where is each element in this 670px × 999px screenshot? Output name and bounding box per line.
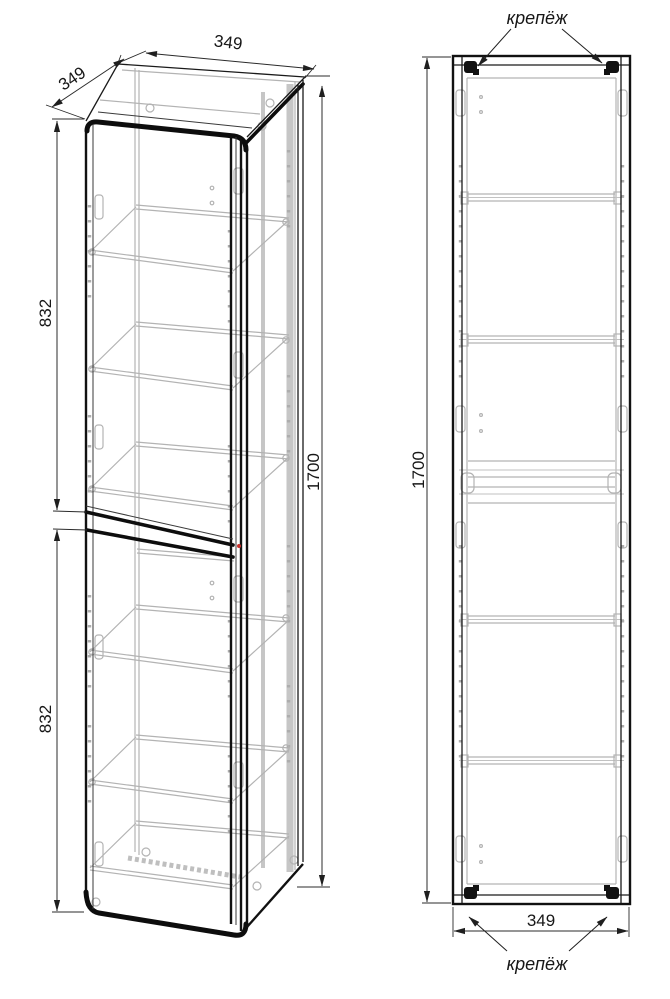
screw-dot	[480, 414, 483, 417]
fastener-top-right-tab	[604, 69, 610, 75]
dim-text-width-349: 349	[213, 31, 243, 53]
shelf-2	[90, 322, 289, 390]
front-top-edge-band	[87, 122, 246, 150]
screw-dot	[480, 430, 483, 433]
bracket-icon	[266, 99, 274, 107]
shelf-1	[90, 205, 289, 273]
bottom-hatch-strip	[128, 858, 240, 877]
perspective-interior	[89, 68, 300, 906]
screw-dot	[480, 861, 483, 864]
front-frame	[453, 56, 630, 904]
hinge-icon	[618, 836, 627, 862]
front-hinges	[456, 90, 627, 862]
front-outer-box	[453, 56, 630, 904]
dim-text-front-349: 349	[527, 911, 555, 930]
bracket-icon	[146, 104, 154, 112]
front-wall-inner-lines	[454, 57, 629, 903]
shelf-end-cap	[614, 614, 621, 626]
screw-dot	[210, 201, 214, 205]
shelf-end-cap	[614, 755, 621, 767]
fastener-callout-bottom-label: крепёж	[507, 954, 569, 974]
hinge-icon	[456, 836, 465, 862]
fastener-bottom-right-tab	[604, 885, 610, 891]
front-bottom-edge-band	[86, 892, 246, 935]
shelf-end-cap	[614, 192, 621, 204]
fastener-callout-top-label: крепёж	[507, 8, 569, 28]
fastener-callout-top-arrow-left	[478, 29, 511, 66]
corner-fasteners	[464, 61, 619, 899]
shelf-3	[90, 442, 289, 510]
middle-rail-wide-lines	[459, 470, 624, 494]
fastener-callout-bottom-arrow-left	[469, 917, 507, 951]
dim-text-front-1700: 1700	[409, 451, 428, 489]
dim-line-width-349	[146, 53, 314, 69]
front-view: 1700 349 крепёж крепёж	[409, 8, 630, 974]
hinge-icon	[456, 406, 465, 432]
middle-rail-cluster	[459, 461, 624, 503]
hinge-icon	[95, 195, 103, 219]
perspective-view: 349 349 832 832 1700	[36, 31, 330, 935]
door-edge-lines	[467, 78, 616, 884]
screw-dot	[480, 111, 483, 114]
fastener-callout-bottom-arrow-right	[569, 917, 607, 951]
screw-dot	[210, 596, 214, 600]
front-face-outline	[86, 122, 247, 934]
dim-text-height-1700: 1700	[304, 453, 323, 491]
hinge-icon	[618, 522, 627, 548]
fastener-bottom-left-tab	[473, 885, 479, 891]
dim-text-upper-832: 832	[36, 299, 55, 327]
perspective-dimensions: 349 349 832 832 1700	[36, 31, 330, 912]
bottom-panel	[90, 821, 289, 889]
hinge-icon	[456, 90, 465, 116]
fastener-top-left-tab	[473, 69, 479, 75]
dim-text-lower-832: 832	[36, 705, 55, 733]
screw-dot	[210, 581, 214, 585]
dim-text-depth-349: 349	[55, 63, 89, 95]
technical-drawing-canvas: 349 349 832 832 1700	[0, 0, 670, 999]
front-screw-dots	[480, 96, 483, 864]
bracket-icon	[142, 848, 150, 856]
hinge-icon	[456, 522, 465, 548]
back-right-edge	[298, 80, 303, 866]
hinge-icon	[618, 90, 627, 116]
front-interior	[456, 78, 627, 884]
screw-dot	[480, 96, 483, 99]
cabinet-drawing-svg: 349 349 832 832 1700	[0, 0, 670, 999]
upper-door-handle	[86, 512, 233, 545]
shelf-5	[90, 735, 289, 803]
bracket-icon	[253, 882, 261, 890]
shelf-end-cap	[614, 334, 621, 346]
right-bottom-edge	[247, 864, 303, 927]
rail-bracket	[608, 473, 621, 493]
screw-dot	[480, 845, 483, 848]
perspective-frame	[86, 64, 305, 935]
screw-dot	[210, 186, 214, 190]
accent-dot	[237, 544, 241, 548]
hinge-icon	[95, 425, 103, 449]
hinge-icon	[618, 406, 627, 432]
shelf-4	[90, 605, 289, 673]
fastener-callout-top-arrow-right	[562, 29, 602, 63]
middle-rail-lines	[468, 461, 615, 503]
front-dimensions: 1700 349 крепёж крепёж	[409, 8, 629, 974]
front-shelves	[459, 192, 624, 767]
